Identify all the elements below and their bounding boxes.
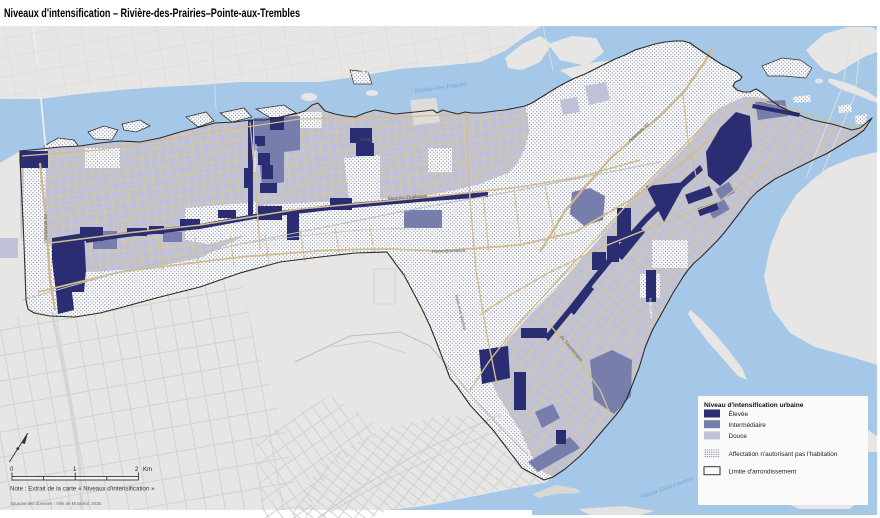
svg-text:Sources des données : Ville de: Sources des données : Ville de Montréal,… xyxy=(10,501,102,506)
svg-text:Limite d'arrondissement: Limite d'arrondissement xyxy=(729,469,797,476)
svg-text:Km: Km xyxy=(143,467,152,473)
svg-text:Henri-Bourassa: Henri-Bourassa xyxy=(432,248,466,255)
svg-text:Intermédiaire: Intermédiaire xyxy=(729,422,767,429)
svg-text:Autoroute 25: Autoroute 25 xyxy=(43,214,48,240)
svg-text:Niveaux d'intensification – Ri: Niveaux d'intensification – Rivière-des-… xyxy=(4,6,300,20)
svg-text:Élevée: Élevée xyxy=(729,409,749,418)
svg-text:Affectation n'autorisant pas l: Affectation n'autorisant pas l'habitatio… xyxy=(729,451,838,458)
svg-text:Perron: Perron xyxy=(360,137,373,142)
svg-text:Note : Extrait de la carte « N: Note : Extrait de la carte « Niveaux d'i… xyxy=(10,486,155,493)
svg-text:Douce: Douce xyxy=(729,433,748,440)
svg-text:Niveau d'intensification urbai: Niveau d'intensification urbaine xyxy=(704,402,804,409)
